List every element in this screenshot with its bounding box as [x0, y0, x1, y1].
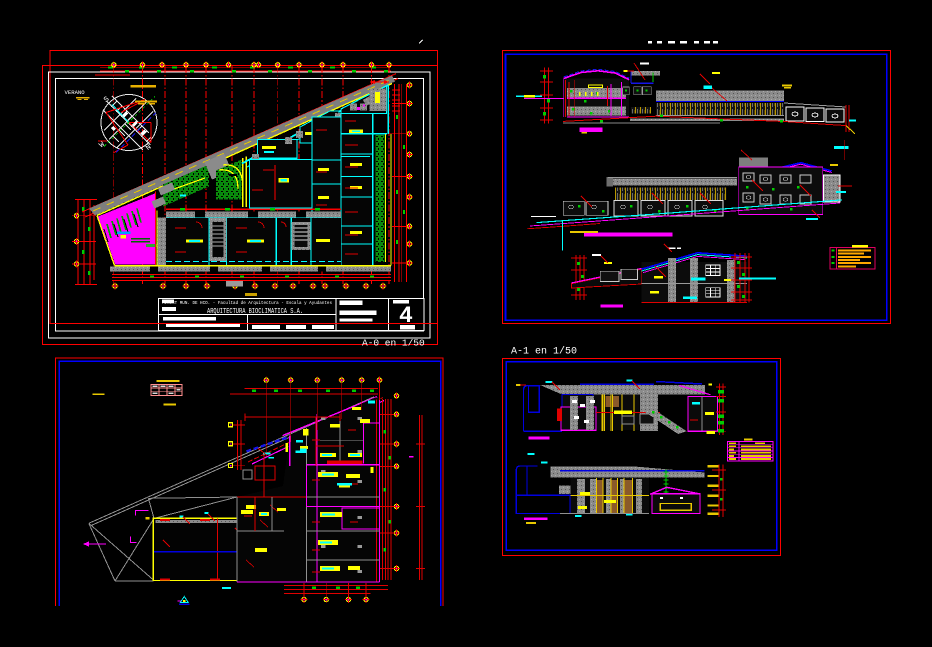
svg-text:VERANO: VERANO [65, 89, 86, 96]
svg-text:A-0 en 1/50: A-0 en 1/50 [362, 338, 425, 349]
svg-text:ARQUITECTURA BIOCLIMATICA S.A.: ARQUITECTURA BIOCLIMATICA S.A. [207, 308, 303, 316]
svg-text:4: 4 [399, 303, 413, 329]
svg-text:MINIST MUN. DE HCO. - Facultad: MINIST MUN. DE HCO. - Facultad de Arquit… [162, 300, 332, 306]
svg-text:A-1 en 1/50: A-1 en 1/50 [511, 346, 577, 358]
